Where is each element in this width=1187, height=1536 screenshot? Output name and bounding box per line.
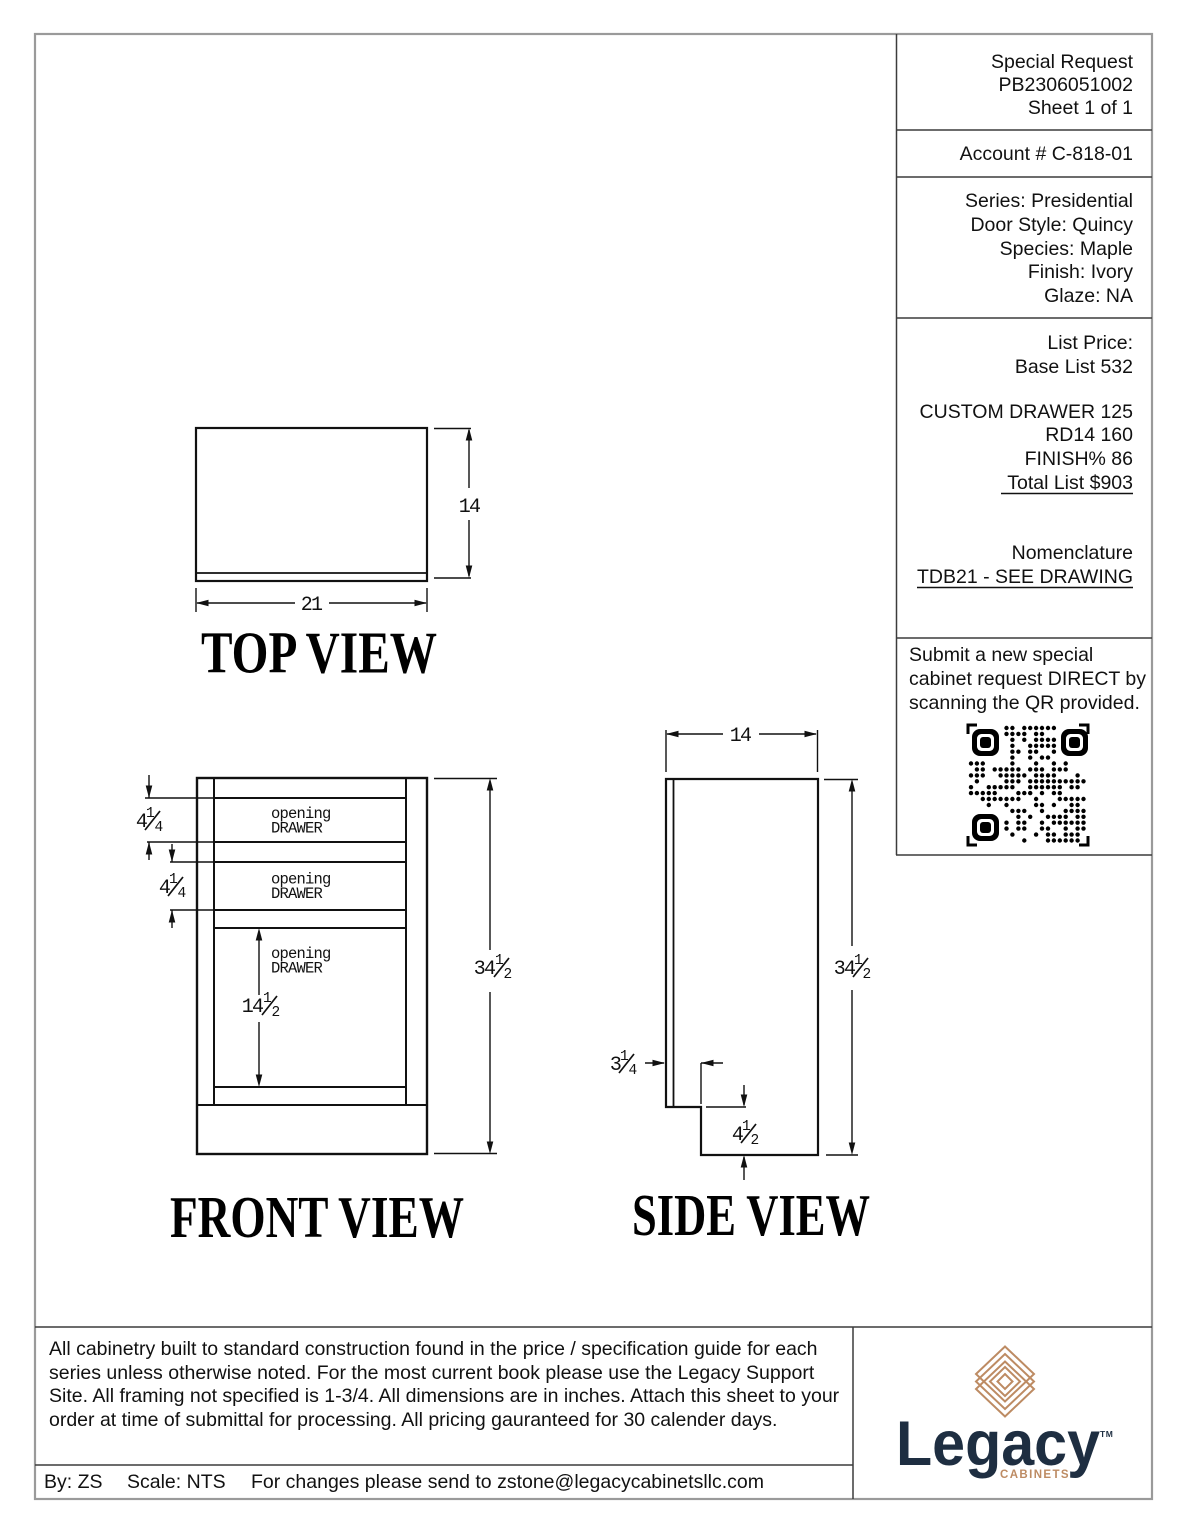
svg-text:34: 34 (834, 958, 855, 981)
svg-text:21: 21 (301, 594, 323, 617)
svg-text:Finish: Ivory: Finish: Ivory (1028, 261, 1133, 283)
svg-text:List Price:: List Price: (1047, 332, 1133, 354)
svg-text:series unless otherwise noted.: series unless otherwise noted. For the m… (49, 1362, 815, 1384)
svg-text:Site. All framing not specifie: Site. All framing not specified is 1-3/4… (49, 1385, 840, 1407)
svg-text:By: ZS: By: ZS (44, 1471, 103, 1493)
svg-text:2: 2 (272, 1005, 281, 1021)
svg-text:4: 4 (178, 886, 187, 902)
svg-text:14: 14 (242, 996, 263, 1019)
svg-text:34: 34 (474, 958, 495, 981)
svg-text:TM: TM (1100, 1429, 1113, 1439)
svg-text:2: 2 (863, 967, 872, 983)
svg-text:DRAWER: DRAWER (271, 885, 323, 903)
svg-text:CABINETS: CABINETS (1000, 1469, 1070, 1481)
svg-text:Glaze: NA: Glaze: NA (1044, 285, 1133, 307)
svg-text:CUSTOM DRAWER 125: CUSTOM DRAWER 125 (920, 401, 1134, 423)
svg-text:FINISH% 86: FINISH% 86 (1025, 448, 1133, 470)
svg-text:SIDE VIEW: SIDE VIEW (632, 1182, 870, 1248)
svg-text:4: 4 (155, 820, 164, 836)
svg-text:order at time of submittal for: order at time of submittal for processin… (49, 1409, 777, 1431)
svg-text:2: 2 (504, 967, 513, 983)
svg-text:Door Style: Quincy: Door Style: Quincy (970, 214, 1133, 236)
svg-text:All cabinetry built to standar: All cabinetry built to standard construc… (49, 1338, 818, 1360)
svg-text:Total List $903: Total List $903 (1007, 472, 1133, 494)
svg-text:Species: Maple: Species: Maple (1000, 238, 1133, 260)
svg-text:Series: Presidential: Series: Presidential (965, 190, 1133, 212)
svg-text:FRONT VIEW: FRONT VIEW (170, 1184, 464, 1250)
svg-text:Base List 532: Base List 532 (1015, 356, 1133, 378)
svg-text:RD14 160: RD14 160 (1045, 424, 1133, 446)
svg-text:TOP VIEW: TOP VIEW (201, 620, 437, 686)
svg-text:DRAWER: DRAWER (271, 820, 323, 838)
svg-text:cabinet request DIRECT by: cabinet request DIRECT by (909, 668, 1146, 690)
svg-text:Scale: NTS: Scale: NTS (127, 1471, 226, 1493)
svg-text:Nomenclature: Nomenclature (1012, 542, 1133, 564)
svg-text:14: 14 (730, 725, 751, 748)
svg-text:Account # C-818-01: Account # C-818-01 (960, 143, 1133, 165)
svg-text:DRAWER: DRAWER (271, 960, 323, 978)
svg-text:14: 14 (459, 496, 480, 519)
svg-text:Submit a new special: Submit a new special (909, 644, 1093, 666)
svg-text:4: 4 (629, 1063, 638, 1079)
svg-text:TDB21 - SEE DRAWING: TDB21 - SEE DRAWING (917, 566, 1133, 588)
svg-text:Sheet 1 of 1: Sheet 1 of 1 (1028, 97, 1133, 119)
svg-text:Special Request: Special Request (991, 51, 1134, 73)
svg-text:For changes please send to zst: For changes please send to zstone@legacy… (251, 1471, 764, 1493)
svg-text:scanning the QR provided.: scanning the QR provided. (909, 692, 1140, 714)
svg-text:2: 2 (751, 1133, 760, 1149)
svg-text:PB2306051002: PB2306051002 (999, 74, 1133, 96)
